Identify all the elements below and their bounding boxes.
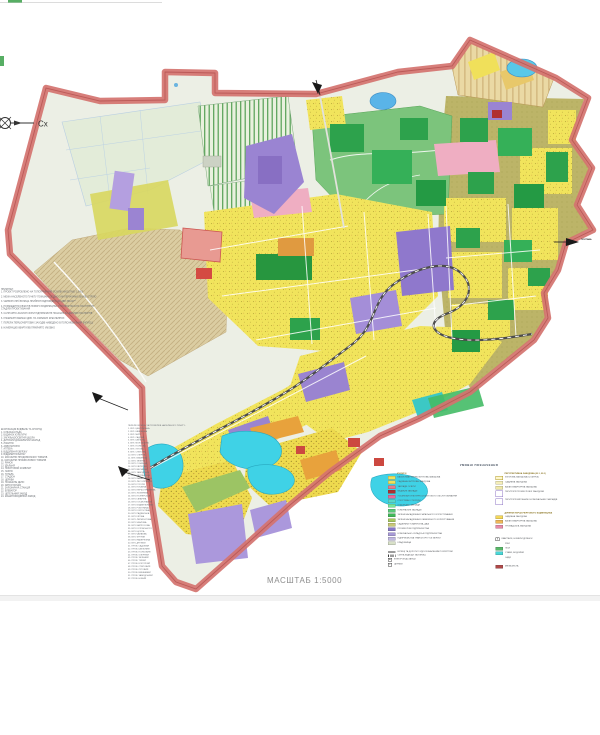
note-line: 8. НУМЕРАЦІЮ КВАРТАЛІВ ПРИЙНЯТО УМОВНО bbox=[1, 326, 101, 329]
legend-label: ПРОМИСЛОВІ ПІДПРИЄМСТВА bbox=[398, 528, 429, 530]
legend-label: ЖИТЛОВА ЗАБУДОВА (І-ІІ ЧЕРГА) bbox=[505, 476, 539, 478]
legend-item: БАГАТОКВАРТИРНА ЗАБУДОВА bbox=[496, 520, 570, 524]
legend-label: ЗЕЛЕНІ НАСАДЖЕННЯ ОБМЕЖЕНОГО КОРИСТУВАНН… bbox=[398, 518, 455, 520]
legend-swatch: ▪ bbox=[388, 563, 392, 567]
legend-swatch bbox=[388, 509, 396, 513]
note-line: 24. МАШИНОБУДІВНИЙ ЗАВОД bbox=[1, 495, 101, 498]
legend-title: УМОВНІ ПОЗНАЧЕННЯ bbox=[388, 464, 570, 467]
legend-item: ОЗДОРОВЧІ ЗАКЛАДИ bbox=[388, 504, 491, 508]
legend-item: ПРОМИСЛОВІ ПІДПРИЄМСТВА bbox=[388, 528, 491, 532]
legend-swatch bbox=[388, 504, 396, 508]
notes-column-explication: ЕКСПЛІКАЦІЯ БУДІВЕЛЬ ТА СПОРУД:1. СІЛЬСЬ… bbox=[1, 428, 101, 568]
legend-label: МЕЖА МІСТА bbox=[505, 565, 518, 567]
legend-swatch bbox=[388, 481, 396, 485]
legend-group-header: ІСНУЮЧІ bbox=[397, 472, 491, 475]
legend-swatch bbox=[388, 499, 396, 503]
legend-item: ТЕРИТОРІЇ ПРОМИСЛОВОЇ ЗАБУДОВИ bbox=[496, 491, 570, 498]
legend-swatch bbox=[496, 486, 504, 490]
legend-item: ПІДПРИЄМСТВА ТРАНСПОРТУ ТА ЗВ'ЯЗКУ bbox=[388, 537, 491, 541]
zone-cemetery bbox=[203, 156, 221, 167]
legend-label: КОМУНАЛЬНІ ЗАКЛАДИ bbox=[398, 509, 422, 511]
legend-item: СМУГА ВІДВОДУ ЗАЛІЗНИЦІ bbox=[388, 554, 491, 557]
legend-label: СМУГА ВІДВОДУ ЗАЛІЗНИЦІ bbox=[398, 554, 426, 556]
legend-label: ГРОМАДСЬКА ЗАБУДОВА bbox=[505, 525, 531, 527]
legend-item: хКВАРТАЛИ, НОМЕРИ ДІЛЯНОК bbox=[496, 538, 570, 542]
legend-item: САДІВНИЧІ ТОВАРИСТВА, ДАЧІ bbox=[388, 523, 491, 527]
compass-label: Сх bbox=[38, 120, 48, 129]
zone-salmon bbox=[181, 228, 222, 262]
legend-item: КЛАДОВИЩА bbox=[388, 542, 491, 546]
legend-swatch bbox=[496, 476, 504, 480]
legend-label: ЕЛЕКТРОПІДСТАНЦІЇ bbox=[394, 558, 415, 560]
legend-swatch bbox=[388, 523, 396, 527]
legend-label: САДІВНИЧІ ТОВАРИСТВА, ДАЧІ bbox=[398, 523, 430, 525]
legend-label: ЛІСИ bbox=[505, 547, 510, 549]
legend-item: ЕЕЛЕКТРОПІДСТАНЦІЇ bbox=[388, 558, 491, 562]
legend-item: САДИБНА ЗАБУДОВА bbox=[496, 515, 570, 519]
legend-swatch: Е bbox=[388, 558, 392, 562]
legend-swatch bbox=[388, 537, 396, 541]
legend-swatch bbox=[496, 515, 504, 519]
notes-column-streets: ПЕРЕЛІК ВУЛИЦЬ ТА ПРОВУЛКІВ НАСЕЛЕНОГО П… bbox=[128, 424, 256, 735]
legend-item: БАГАТОКВАРТИРНА ЖИТЛОВА ЗАБУДОВА bbox=[388, 476, 491, 480]
legend-label: ВУЛИЦІ ТА ДОРОГИ З УДОСКОНАЛЕНИМ ПОКРИТТ… bbox=[398, 550, 453, 552]
scale-label: МАСШТАБ 1:5000 bbox=[267, 576, 342, 585]
legend-label: ОЗДОРОВЧІ ЗАКЛАДИ bbox=[398, 504, 420, 506]
legend-label: САДИБНА ЗАБУДОВА bbox=[505, 481, 527, 483]
legend-group-header: ПЕРСПЕКТИВНА ЗАБУДОВА (Ж-1, Ж-2) bbox=[505, 472, 570, 475]
note-line: 52. ПРОВ. НОВИЙ bbox=[128, 577, 256, 580]
legend-swatch bbox=[388, 542, 396, 546]
legend-label: СПОРТИВНІ СПОРУДИ bbox=[398, 499, 421, 501]
legend-swatch bbox=[496, 565, 504, 569]
bottom-margin bbox=[0, 595, 600, 601]
legend-swatch bbox=[388, 552, 396, 553]
legend-swatch bbox=[388, 495, 396, 499]
legend-item: СТАВИ, ВОДОЙМИ bbox=[496, 552, 570, 556]
legend-item: ГРОМАДСЬКА ЗАБУДОВА bbox=[496, 525, 570, 529]
legend-item: САДИБНА ЖИТЛОВА ЗАБУДОВА bbox=[388, 481, 491, 485]
legend-item: КОМУНАЛЬНО-СКЛАДСЬКІ ПІДПРИЄМСТВА bbox=[388, 532, 491, 536]
legend-label: БАГАТОКВАРТИРНА ЖИТЛОВА ЗАБУДОВА bbox=[398, 476, 441, 478]
note-line: 5. САНІТАРНО-ЗАХИСНІ ЗОНИ ПІДПРИЄМСТВ ПО… bbox=[1, 312, 101, 315]
legend-label: ТЕРИТОРІЇ ВИРОБНИЧО-КОМУНАЛЬНИХ ЗАКЛАДІВ bbox=[505, 498, 557, 500]
legend-label: РІКИ bbox=[505, 542, 510, 544]
legend-label: КОМУНАЛЬНО-СКЛАДСЬКІ ПІДПРИЄМСТВА bbox=[398, 532, 442, 534]
legend-item: СПОРТИВНІ СПОРУДИ bbox=[388, 499, 491, 503]
legend-label: ЗЕЛЕНІ НАСАДЖЕННЯ ЗАГАЛЬНОГО КОРИСТУВАНН… bbox=[398, 514, 453, 516]
notes-column-remarks: ПРИМІТКИ:1. ПРОЕКТ РОЗРОБЛЕНО НА ТОПОГРА… bbox=[1, 288, 101, 370]
legend-label: КЛАДОВИЩА bbox=[398, 542, 411, 544]
legend-swatch bbox=[388, 555, 396, 558]
legend-swatch bbox=[388, 518, 396, 522]
legend-swatch bbox=[388, 532, 396, 536]
legend-spacer bbox=[496, 506, 570, 510]
legend-label: МЕДИЧНІ ЗАКЛАДИ bbox=[398, 490, 418, 492]
legend-label: КВАРТАЛИ, НОМЕРИ ДІЛЯНОК bbox=[502, 538, 533, 540]
exit-direction-label: ПОЛТАВА bbox=[581, 238, 600, 243]
legend-swatch bbox=[496, 552, 504, 556]
legend-swatch bbox=[388, 528, 396, 532]
legend-swatch bbox=[496, 547, 504, 551]
legend-label: САДИБНА ЗАБУДОВА bbox=[505, 515, 527, 517]
legend-item: КОМУНАЛЬНІ ЗАКЛАДИ bbox=[388, 509, 491, 513]
legend-swatch bbox=[496, 525, 504, 529]
legend-panel: УМОВНІ ПОЗНАЧЕННЯ ІСНУЮЧІБАГАТОКВАРТИРНА… bbox=[388, 464, 570, 675]
legend-item: ▪ЦЕРКВИ bbox=[388, 563, 491, 567]
legend-item: ЗЕЛЕНІ НАСАДЖЕННЯ ЗАГАЛЬНОГО КОРИСТУВАНН… bbox=[388, 514, 491, 518]
note-line: 7. ПЕРЕЛІК ПЕРШОЧЕРГОВИХ ЗАХОДІВ НАВЕДЕН… bbox=[1, 322, 101, 325]
legend-swatch bbox=[496, 491, 504, 498]
legend-item: РІКИ bbox=[496, 542, 570, 546]
legend-swatch: х bbox=[496, 538, 500, 542]
legend-label: БАГАТОКВАРТИРНА ЗАБУДОВА bbox=[505, 520, 537, 522]
legend-swatch bbox=[388, 476, 396, 480]
legend-item: САДИ bbox=[496, 556, 570, 560]
legend-label: САДИ bbox=[505, 556, 511, 558]
legend-item: ЛІСИ bbox=[496, 547, 570, 551]
legend-label: ЦЕРКВИ bbox=[394, 563, 402, 565]
legend-label: БАГАТОКВАРТИРНА ЗАБУДОВА bbox=[505, 486, 537, 488]
legend-label: УСТАНОВИ КУЛЬТУРНО-ПОБУТОВОГО ОБСЛУГОВУВ… bbox=[398, 495, 457, 497]
legend-item: ЗЕЛЕНІ НАСАДЖЕННЯ ОБМЕЖЕНОГО КОРИСТУВАНН… bbox=[388, 518, 491, 522]
legend-label: СТАВИ, ВОДОЙМИ bbox=[505, 552, 524, 554]
legend-swatch bbox=[496, 481, 504, 485]
legend-item: БАГАТОКВАРТИРНА ЗАБУДОВА bbox=[496, 486, 570, 490]
corner-marks bbox=[0, 0, 22, 66]
legend-item: ЖИТЛОВА ЗАБУДОВА (І-ІІ ЧЕРГА) bbox=[496, 476, 570, 480]
legend-column-planned: ПЕРСПЕКТИВНА ЗАБУДОВА (Ж-1, Ж-2)ЖИТЛОВА … bbox=[496, 471, 570, 570]
legend-item: ЗАКЛАДИ ОСВІТИ bbox=[388, 485, 491, 489]
legend-item: ВУЛИЦІ ТА ДОРОГИ З УДОСКОНАЛЕНИМ ПОКРИТТ… bbox=[388, 550, 491, 552]
legend-swatch bbox=[388, 485, 396, 489]
legend-label: ТЕРИТОРІЇ ПРОМИСЛОВОЇ ЗАБУДОВИ bbox=[505, 491, 544, 493]
legend-swatch bbox=[388, 514, 396, 518]
legend-item: УСТАНОВИ КУЛЬТУРНО-ПОБУТОВОГО ОБСЛУГОВУВ… bbox=[388, 495, 491, 499]
legend-item: ТЕРИТОРІЇ ВИРОБНИЧО-КОМУНАЛЬНИХ ЗАКЛАДІВ bbox=[496, 498, 570, 505]
legend-label: ПІДПРИЄМСТВА ТРАНСПОРТУ ТА ЗВ'ЯЗКУ bbox=[398, 537, 441, 539]
note-line: 2. МЕЖА НАСЕЛЕНОГО ПУНКТУ ПОКАЗАНА ЗГІДН… bbox=[1, 295, 101, 298]
legend-swatch bbox=[496, 520, 504, 524]
genplan-sheet: { "page": {"background": "#ffffff"}, "ma… bbox=[0, 0, 600, 600]
legend-swatch bbox=[388, 490, 396, 494]
legend-group-header: ДІЛЯНКИ ПЕРШОЧЕРГОВОГО БУДІВНИЦТВА bbox=[505, 511, 570, 514]
legend-item: МЕДИЧНІ ЗАКЛАДИ bbox=[388, 490, 491, 494]
legend-label: САДИБНА ЖИТЛОВА ЗАБУДОВА bbox=[398, 481, 431, 483]
legend-swatch bbox=[496, 498, 504, 505]
legend-label: ЗАКЛАДИ ОСВІТИ bbox=[398, 485, 416, 487]
legend-item: САДИБНА ЗАБУДОВА bbox=[496, 481, 570, 485]
legend-item: МЕЖА МІСТА bbox=[496, 565, 570, 569]
compass-rose bbox=[0, 117, 34, 129]
legend-column-existing: ІСНУЮЧІБАГАТОКВАРТИРНА ЖИТЛОВА ЗАБУДОВАС… bbox=[388, 471, 491, 570]
